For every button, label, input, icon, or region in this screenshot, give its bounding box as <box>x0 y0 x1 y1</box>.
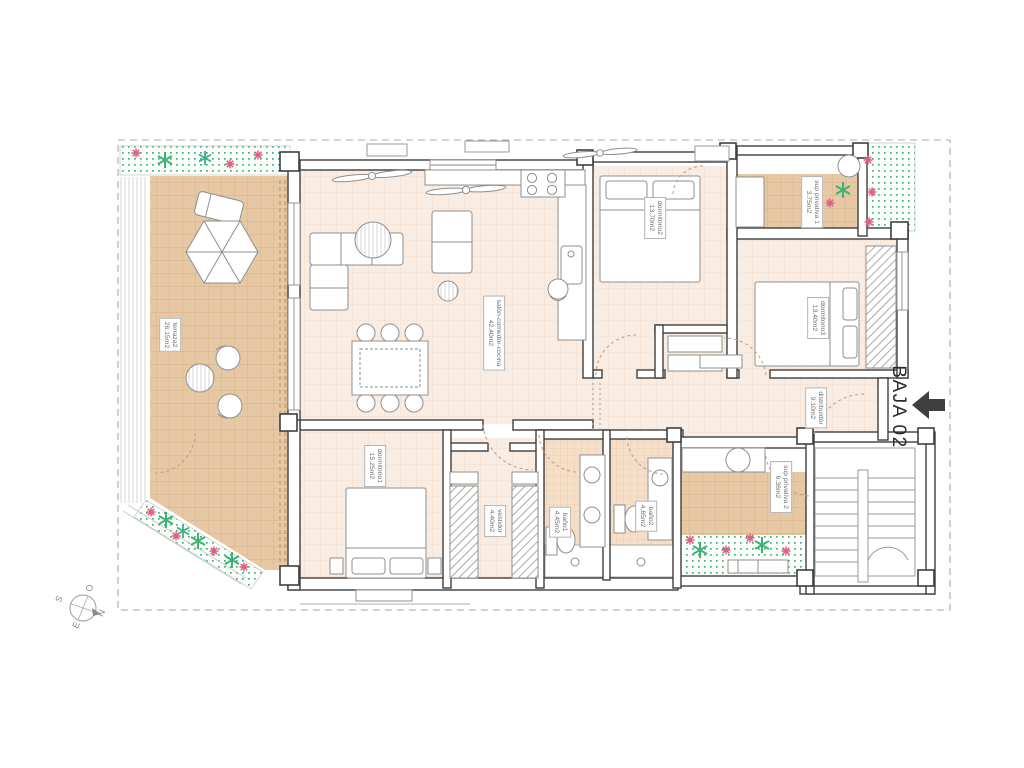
dining-table-set <box>352 324 428 412</box>
hall-floor <box>590 378 885 438</box>
direction-arrow-icon <box>912 391 945 419</box>
person-figure <box>548 279 568 301</box>
room-label-vestidor: vestidor4.40m2 <box>484 505 506 537</box>
loveseat <box>432 211 472 273</box>
floor-plan-page: terraza226.15m2 salón-comedor-cocina42.4… <box>0 0 1024 768</box>
room-label-bano2: baño24.65m2 <box>635 501 657 532</box>
stairs <box>815 448 915 582</box>
floor-plan-drawing <box>0 0 1024 768</box>
room-label-dormitorio2: dormitorio213.70m2 <box>644 197 666 239</box>
room-label-sup-privativa-2: sup privativa 26.36m2 <box>770 461 792 513</box>
tree <box>838 155 860 177</box>
side-table <box>438 281 458 301</box>
stove <box>521 170 565 197</box>
exterior-step <box>300 590 470 604</box>
storage1 <box>736 177 764 227</box>
compass-icon: O S E N <box>45 576 125 646</box>
room-label-terraza2: terraza226.15m2 <box>159 318 181 352</box>
room-label-distribuidor: distribuidor9.10m2 <box>805 387 827 428</box>
room-label-dormitorio1: dormitorio115.25m2 <box>364 445 386 487</box>
rug <box>355 222 391 258</box>
room-label-bano1: baño14.45m2 <box>549 507 571 538</box>
room-label-sup-privativa-1: sup privativa 13.75m2 <box>801 176 823 228</box>
bed1 <box>330 488 441 578</box>
room-label-salon: salón-comedor-cocina42.40m2 <box>483 296 505 371</box>
room-label-dormitorio3: dormitorio313.40m2 <box>807 297 829 339</box>
plan-title: BAJA 02 <box>887 365 909 448</box>
wardrobe3 <box>866 246 896 368</box>
